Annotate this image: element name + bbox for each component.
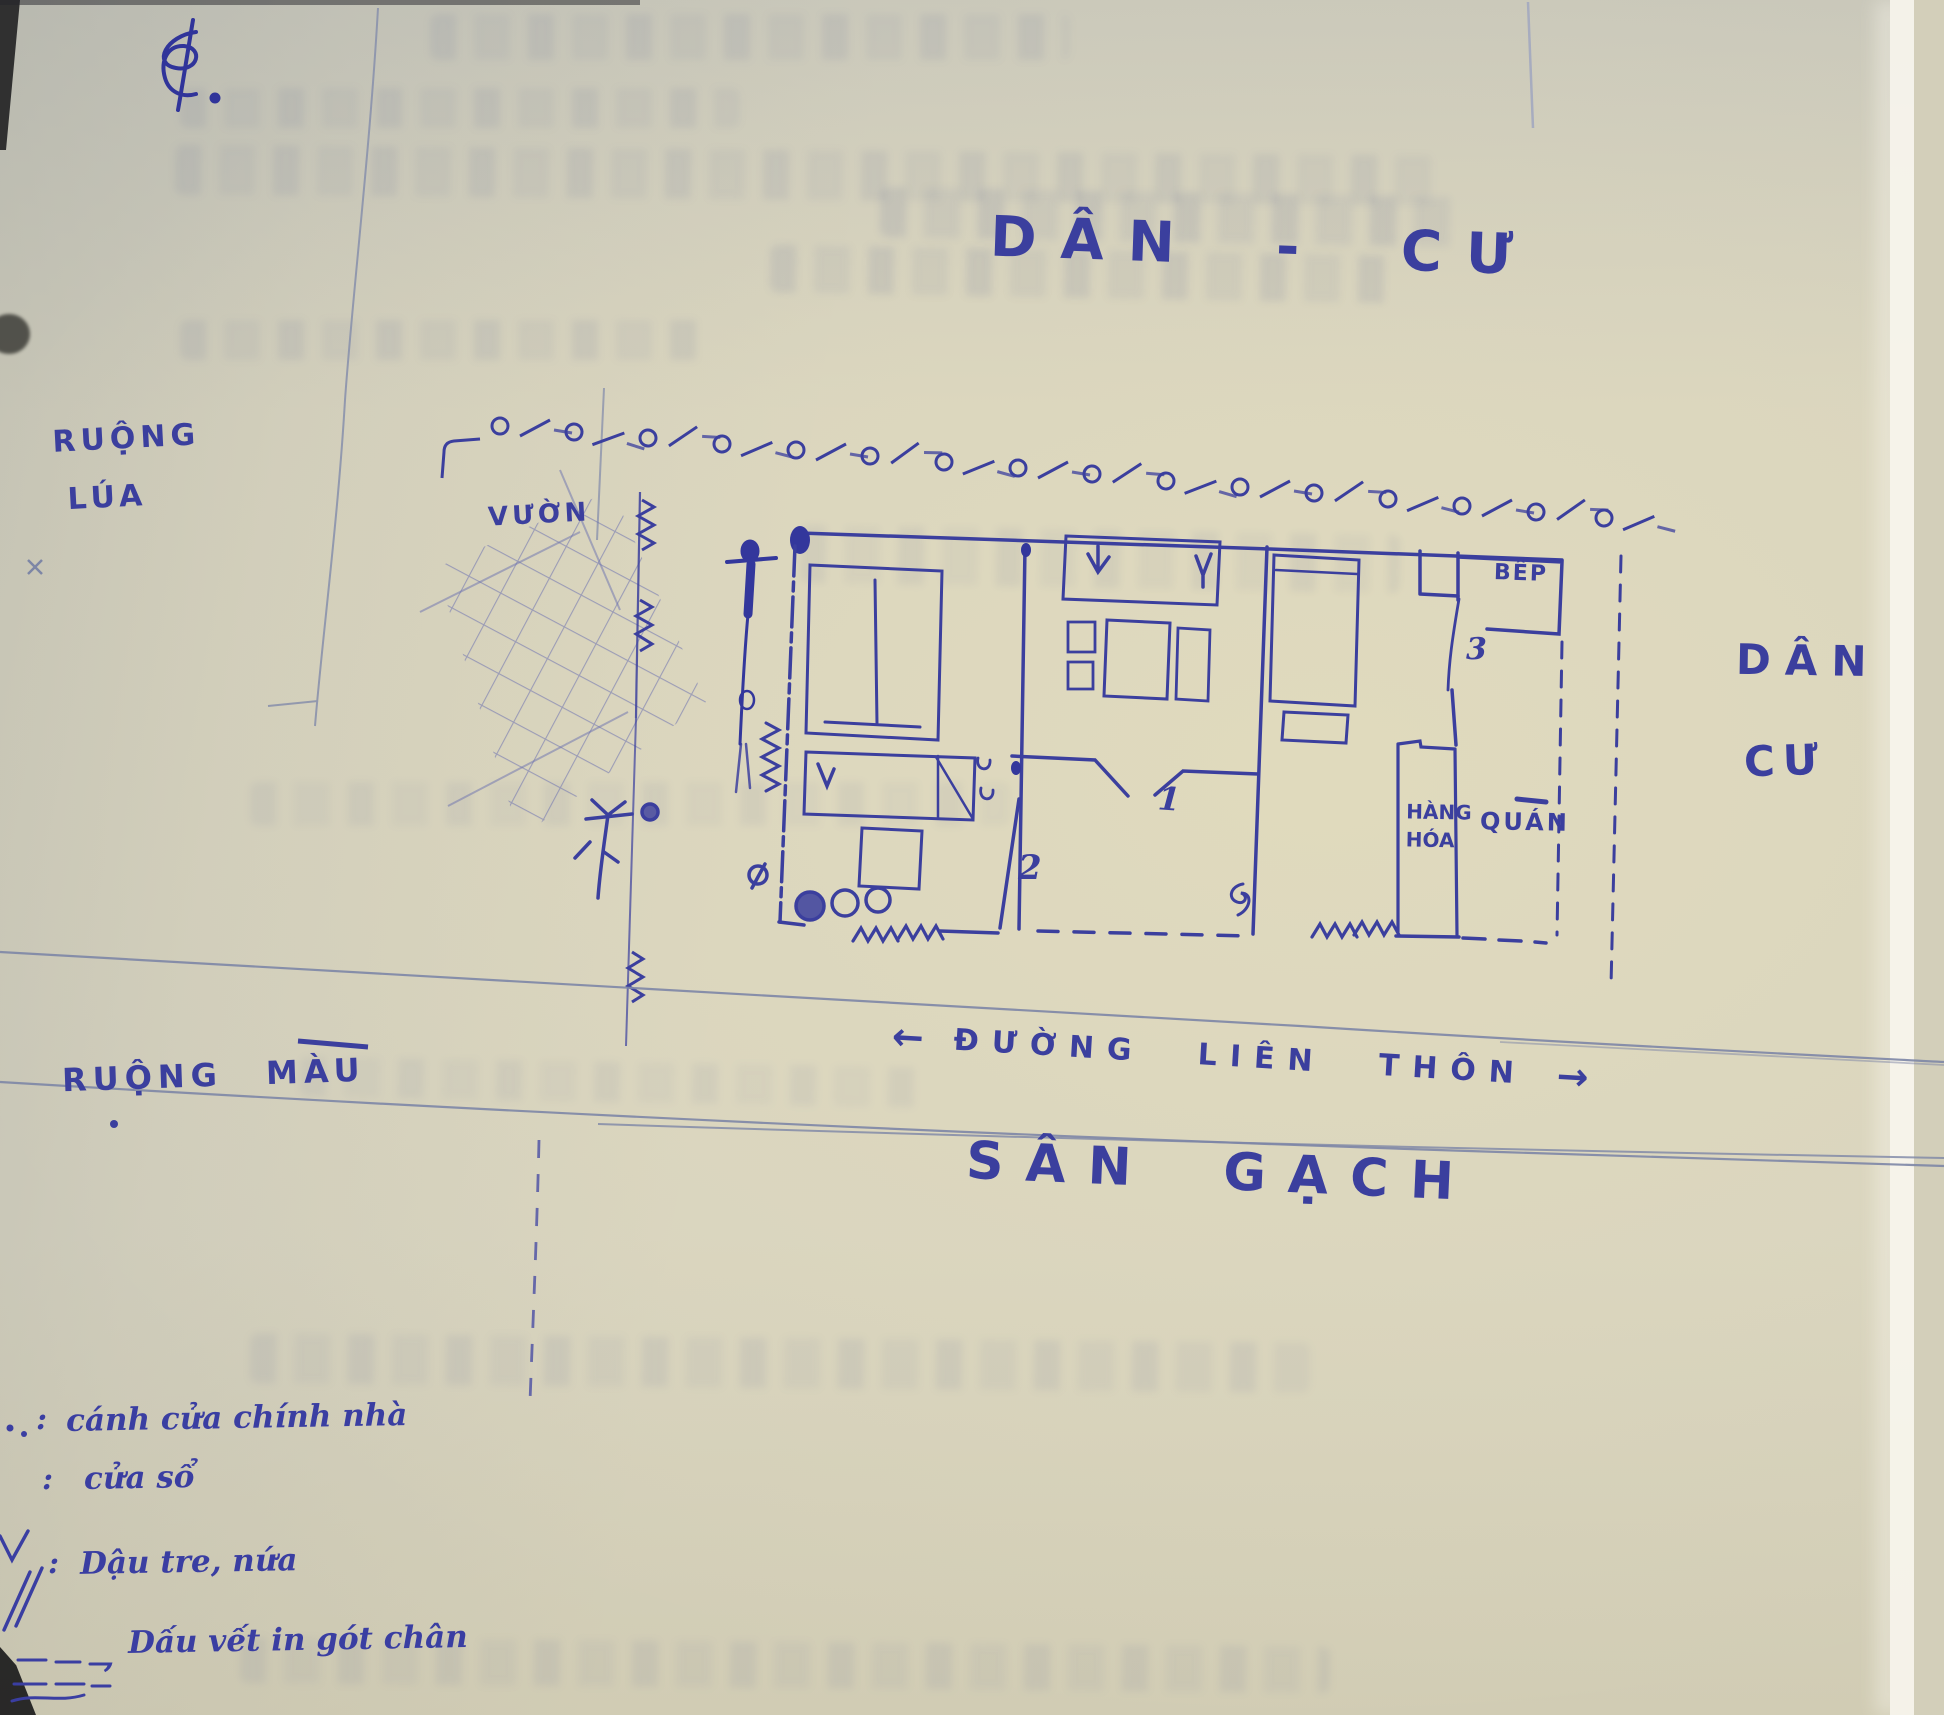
coil-symbol bbox=[628, 952, 643, 1002]
label-goods-line1: HÀNG bbox=[1406, 797, 1472, 826]
legend-label-heel-prints: Dấu vết in gót chân bbox=[128, 1619, 468, 1661]
legend-footprint-dashes-icon bbox=[12, 1660, 110, 1701]
paper-crease-line bbox=[1528, 2, 1533, 128]
x-mark bbox=[28, 560, 42, 574]
shop-label-bar bbox=[1517, 799, 1546, 802]
fence-corner bbox=[442, 439, 480, 478]
road-arrow-left-icon: ← bbox=[891, 1014, 925, 1060]
dashed-wall-1 bbox=[1557, 642, 1562, 935]
squiggle-mark bbox=[1231, 884, 1249, 915]
wall-north bbox=[800, 533, 1562, 560]
post-circle bbox=[866, 888, 890, 912]
field-boundary-line bbox=[268, 8, 378, 726]
door-marker-1: 1 bbox=[1157, 779, 1182, 818]
chair-squares bbox=[1068, 622, 1095, 689]
door-1-left-leaf bbox=[1012, 756, 1128, 796]
cabinet-divider bbox=[936, 756, 973, 819]
wall-south bbox=[1396, 936, 1459, 937]
legend-separator-2: : bbox=[42, 1462, 53, 1497]
wall-west bbox=[780, 546, 795, 922]
wall-south-dashed bbox=[1038, 931, 1250, 936]
wall-south bbox=[940, 931, 998, 933]
door-marker-2: 2 bbox=[1018, 848, 1042, 888]
label-rice-field: RUỘNG LÚA bbox=[52, 420, 204, 516]
table-small bbox=[859, 828, 922, 889]
wall-stub bbox=[1420, 551, 1458, 596]
legend-separator-1: : bbox=[36, 1402, 47, 1437]
wall-middle-room bbox=[1253, 547, 1267, 934]
label-residential-right-line2: CƯ bbox=[1743, 735, 1827, 787]
legend-separator-3: : bbox=[48, 1546, 59, 1581]
door-marker-3: 3 bbox=[1466, 632, 1487, 667]
fence-row bbox=[442, 418, 1676, 534]
map-drawing bbox=[0, 0, 1944, 1715]
label-goods: HÀNG HÓA bbox=[1406, 797, 1472, 854]
wall-south-dashed bbox=[1463, 938, 1546, 943]
road-arrow-right-icon: → bbox=[1555, 1054, 1589, 1100]
label-residential-right-line1: DÂN bbox=[1736, 635, 1881, 687]
door-3-leaf bbox=[1448, 599, 1459, 690]
label-garden: VƯỜN bbox=[487, 497, 591, 532]
coil-symbol bbox=[762, 723, 779, 791]
hinge-hooks bbox=[978, 758, 993, 799]
window-mark bbox=[818, 764, 834, 786]
field-divider-dashed bbox=[530, 1140, 539, 1402]
signature-flourish bbox=[164, 20, 219, 110]
door-2-leaf bbox=[1000, 799, 1019, 928]
label-goods-line2: HÓA bbox=[1406, 825, 1472, 854]
tree-icon bbox=[575, 800, 658, 898]
dashed-wall-2 bbox=[1611, 556, 1621, 986]
legend-label-main-door: cánh cửa chính nhà bbox=[66, 1397, 408, 1439]
bed-pole bbox=[825, 580, 920, 727]
post-circle bbox=[832, 890, 858, 916]
legend-door-dots-icon bbox=[7, 1425, 28, 1438]
window-mark bbox=[1196, 554, 1211, 587]
window-mark bbox=[1088, 546, 1109, 572]
label-kitchen: BẾP bbox=[1494, 560, 1549, 587]
legend-window-check-icon bbox=[0, 1531, 28, 1560]
legend-label-bamboo-fence: Dậu tre, nứa bbox=[80, 1542, 298, 1582]
post-circle bbox=[796, 892, 824, 920]
cabinet-strip bbox=[804, 752, 975, 820]
house-plan bbox=[749, 526, 1621, 986]
corner-blob bbox=[790, 526, 810, 554]
legend-label-window: cửa sổ bbox=[84, 1459, 195, 1497]
bench-small bbox=[1282, 712, 1348, 743]
bed-right bbox=[1270, 555, 1359, 706]
chair-rect bbox=[1176, 628, 1210, 701]
wall-south bbox=[779, 922, 804, 925]
label-rice-field-line1: RUỘNG bbox=[52, 420, 201, 458]
circle-slash bbox=[749, 864, 767, 888]
sketch-map-page: DÂN - CƯ RUỘNG LÚA VƯỜN DÂN CƯ BẾP HÀNG … bbox=[0, 0, 1944, 1715]
legend-separator-4: , bbox=[104, 1640, 114, 1675]
table-rect bbox=[1104, 620, 1170, 699]
label-shop: QUÁN bbox=[1480, 807, 1570, 837]
legend-fence-slashes-icon bbox=[4, 1568, 42, 1630]
